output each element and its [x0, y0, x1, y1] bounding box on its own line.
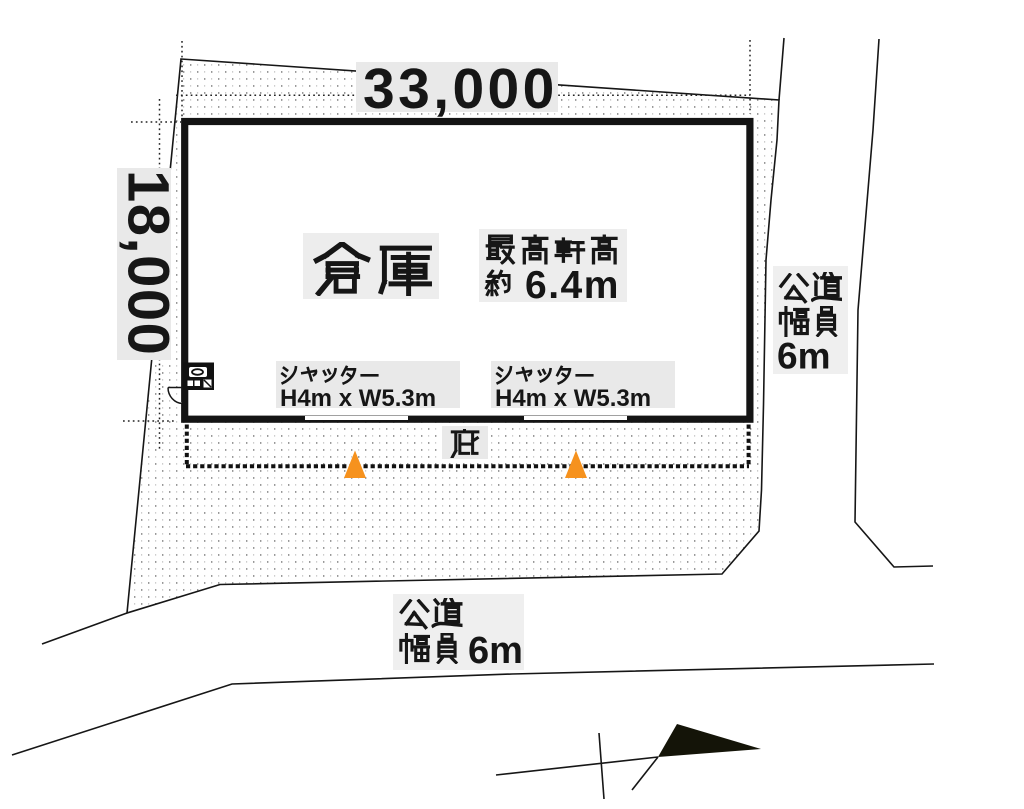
svg-text:33,000: 33,000: [363, 57, 558, 121]
svg-text:6m: 6m: [777, 336, 830, 377]
svg-text:6.4m: 6.4m: [525, 264, 620, 307]
svg-text:18,000: 18,000: [116, 170, 181, 356]
svg-text:6m: 6m: [468, 630, 523, 672]
svg-text:H4m x W5.3m: H4m x W5.3m: [280, 385, 436, 412]
svg-text:H4m x W5.3m: H4m x W5.3m: [495, 385, 651, 412]
